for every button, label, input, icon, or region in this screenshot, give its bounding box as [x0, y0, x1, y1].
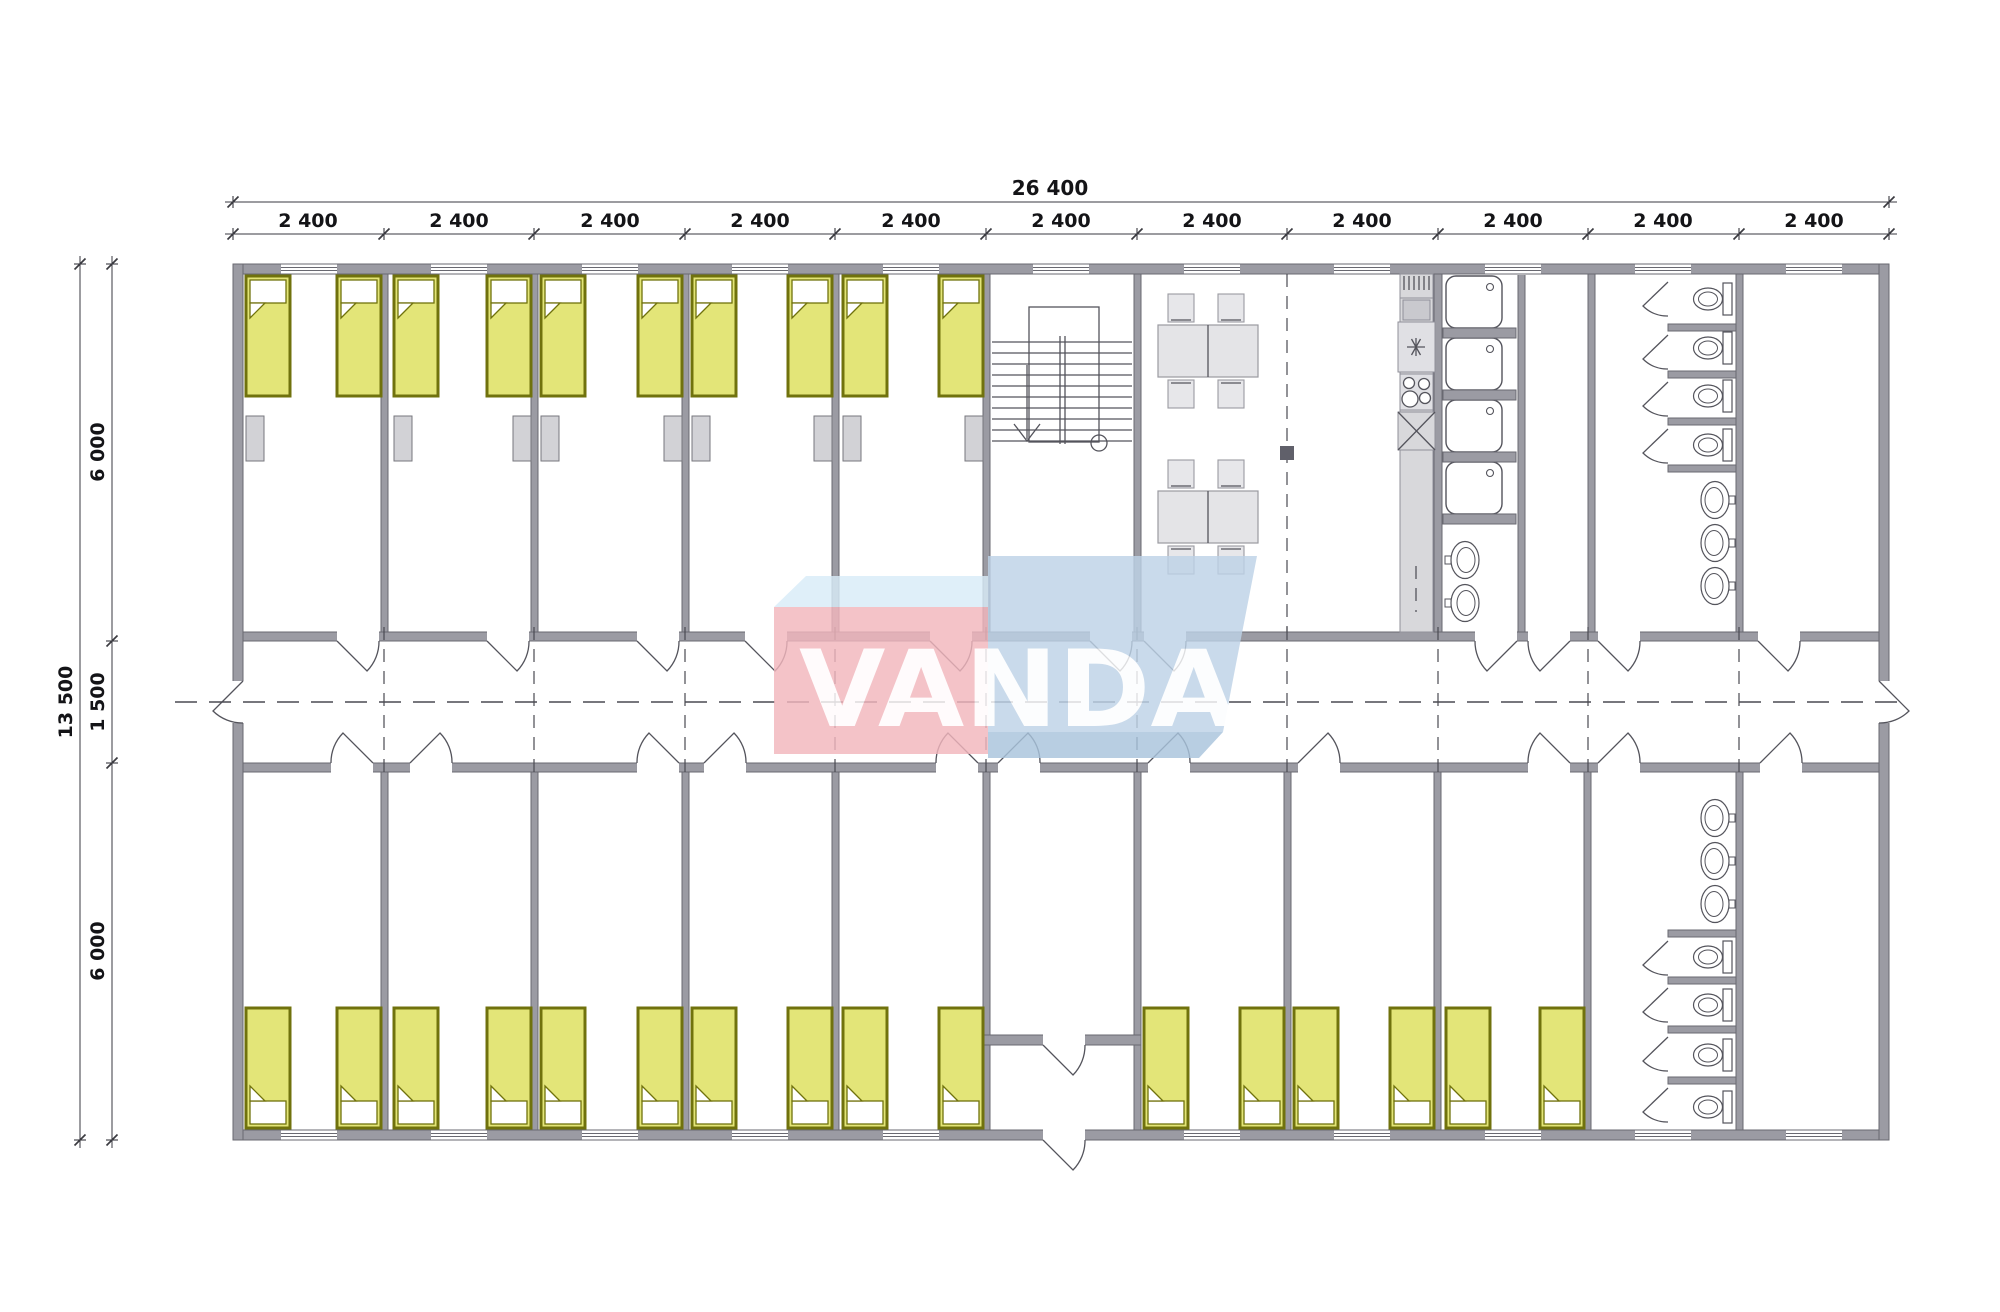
window: [1485, 1129, 1541, 1141]
bed: [1144, 1008, 1188, 1128]
left-dimension-chain: 13 500 6 000 1 500 6 000: [55, 256, 118, 1148]
stall-door: [1643, 1037, 1668, 1071]
window: [431, 1129, 487, 1141]
window: [1786, 263, 1842, 275]
dim-bay-label: 2 400: [278, 210, 338, 232]
window: [281, 1129, 337, 1141]
window: [1334, 1129, 1390, 1141]
door-arc: [1760, 733, 1802, 763]
toilet: [1694, 429, 1733, 461]
kitchen-vent: [1400, 274, 1433, 298]
bed: [541, 276, 585, 396]
door-arc: [337, 641, 379, 671]
chair: [1218, 460, 1244, 488]
washbasin: [1445, 585, 1479, 622]
dim-bay-label: 2 400: [1633, 210, 1693, 232]
dim-bay-label: 2 400: [730, 210, 790, 232]
bed: [788, 276, 832, 396]
bed: [1294, 1008, 1338, 1128]
vestibule-door: [1043, 1045, 1085, 1075]
shower-tray: [1446, 462, 1502, 514]
window: [582, 263, 638, 275]
dim-bay-label: 2 400: [881, 210, 941, 232]
bed: [1240, 1008, 1284, 1128]
chair: [1218, 380, 1244, 408]
bedrooms-top: [246, 276, 983, 461]
dim-bay-label: 2 400: [1182, 210, 1242, 232]
stall-door: [1643, 282, 1668, 316]
washbasin: [1701, 525, 1735, 562]
chair: [1168, 294, 1194, 322]
shower-room: [1443, 276, 1516, 622]
door-arc: [1758, 641, 1800, 671]
dim-top-section-label: 6 000: [87, 422, 109, 482]
window: [281, 263, 337, 275]
shower-tray: [1446, 338, 1502, 390]
chair: [1168, 380, 1194, 408]
window: [431, 263, 487, 275]
door-arc: [1475, 641, 1517, 671]
floor-plan-canvas: 26 400 2 400 2 400 2 400 2 400 2 400 2 4…: [0, 0, 2000, 1312]
main-entrance-door: [1043, 1140, 1085, 1170]
bed: [487, 276, 531, 396]
dim-bay-label: 2 400: [1332, 210, 1392, 232]
locker: [541, 416, 559, 461]
dim-bottom-section-label: 6 000: [87, 921, 109, 981]
chair: [1168, 460, 1194, 488]
toilet: [1694, 1039, 1733, 1071]
locker: [394, 416, 412, 461]
bed: [1390, 1008, 1434, 1128]
locker: [965, 416, 983, 461]
window: [582, 1129, 638, 1141]
dim-bay-label: 2 400: [1784, 210, 1844, 232]
locker: [843, 416, 861, 461]
door-arc: [1298, 733, 1340, 763]
door-arc: [487, 641, 529, 671]
chair: [1218, 294, 1244, 322]
washbasin: [1445, 542, 1479, 579]
window: [1184, 263, 1240, 275]
stall-door: [1643, 988, 1668, 1022]
bed: [394, 1008, 438, 1128]
window: [1485, 263, 1541, 275]
dim-total-width-label: 26 400: [1012, 176, 1089, 200]
locker: [814, 416, 832, 461]
window: [1334, 263, 1390, 275]
dim-total-height-label: 13 500: [55, 666, 77, 739]
bed: [638, 1008, 682, 1128]
bed: [487, 1008, 531, 1128]
toilet: [1694, 1091, 1733, 1123]
stairwell: [992, 307, 1132, 451]
kitchen-unit: [1398, 274, 1435, 632]
window: [883, 1129, 939, 1141]
dim-bay-label: 2 400: [1483, 210, 1543, 232]
window: [1184, 1129, 1240, 1141]
window: [1635, 263, 1691, 275]
bed: [843, 1008, 887, 1128]
stall-door: [1643, 429, 1668, 463]
bed: [541, 1008, 585, 1128]
locker: [692, 416, 710, 461]
bed: [246, 1008, 290, 1128]
door-arc: [331, 733, 373, 763]
bed: [843, 276, 887, 396]
bed: [394, 276, 438, 396]
door-arc: [410, 733, 452, 763]
column: [1280, 446, 1294, 460]
top-dimension-chain: 26 400 2 400 2 400 2 400 2 400 2 400 2 4…: [225, 176, 1897, 240]
bed: [939, 1008, 983, 1128]
door-arc: [637, 733, 679, 763]
door-arc: [704, 733, 746, 763]
dining-area: [1158, 294, 1258, 574]
window: [732, 1129, 788, 1141]
door-arc: [1598, 641, 1640, 671]
door-arc: [1528, 641, 1570, 671]
window: [883, 263, 939, 275]
toilet: [1694, 989, 1733, 1021]
floor-plan-page: 26 400 2 400 2 400 2 400 2 400 2 400 2 4…: [0, 0, 2000, 1312]
stall-door: [1643, 382, 1668, 416]
bed: [337, 1008, 381, 1128]
watermark: VANDA: [774, 556, 1257, 758]
stall-door: [1643, 335, 1668, 369]
toilet: [1694, 332, 1733, 364]
bed: [939, 276, 983, 396]
washbasin: [1701, 886, 1735, 923]
door-arc: [637, 641, 679, 671]
toilet-room-top: [1643, 282, 1736, 605]
bed: [1446, 1008, 1490, 1128]
bed: [692, 1008, 736, 1128]
dim-corridor-label: 1 500: [87, 672, 109, 732]
locker: [513, 416, 531, 461]
door-arc: [1598, 733, 1640, 763]
washbasin: [1701, 568, 1735, 605]
watermark-text: VANDA: [799, 628, 1237, 751]
toilet: [1694, 283, 1733, 315]
dim-bay-label: 2 400: [429, 210, 489, 232]
toilet-room-bottom: [1643, 800, 1736, 1124]
bed: [337, 276, 381, 396]
toilet: [1694, 380, 1733, 412]
bed: [638, 276, 682, 396]
stall-door: [1643, 941, 1668, 975]
bed: [692, 276, 736, 396]
bed: [246, 276, 290, 396]
bed: [1540, 1008, 1584, 1128]
washbasin: [1701, 843, 1735, 880]
window: [1786, 1129, 1842, 1141]
door-arc: [1528, 733, 1570, 763]
window: [732, 263, 788, 275]
window: [1635, 1129, 1691, 1141]
dim-bay-label: 2 400: [1031, 210, 1091, 232]
shower-tray: [1446, 276, 1502, 328]
washbasin: [1701, 800, 1735, 837]
dim-bay-label: 2 400: [580, 210, 640, 232]
bed: [788, 1008, 832, 1128]
watermark-top-face: [774, 576, 988, 607]
locker: [664, 416, 682, 461]
toilet: [1694, 941, 1733, 973]
window: [1033, 263, 1089, 275]
stall-door: [1643, 1088, 1668, 1122]
shower-tray: [1446, 400, 1502, 452]
locker: [246, 416, 264, 461]
kitchen-appliance: [1403, 300, 1430, 320]
bedrooms-bottom: [246, 1008, 1584, 1128]
washbasin: [1701, 482, 1735, 519]
